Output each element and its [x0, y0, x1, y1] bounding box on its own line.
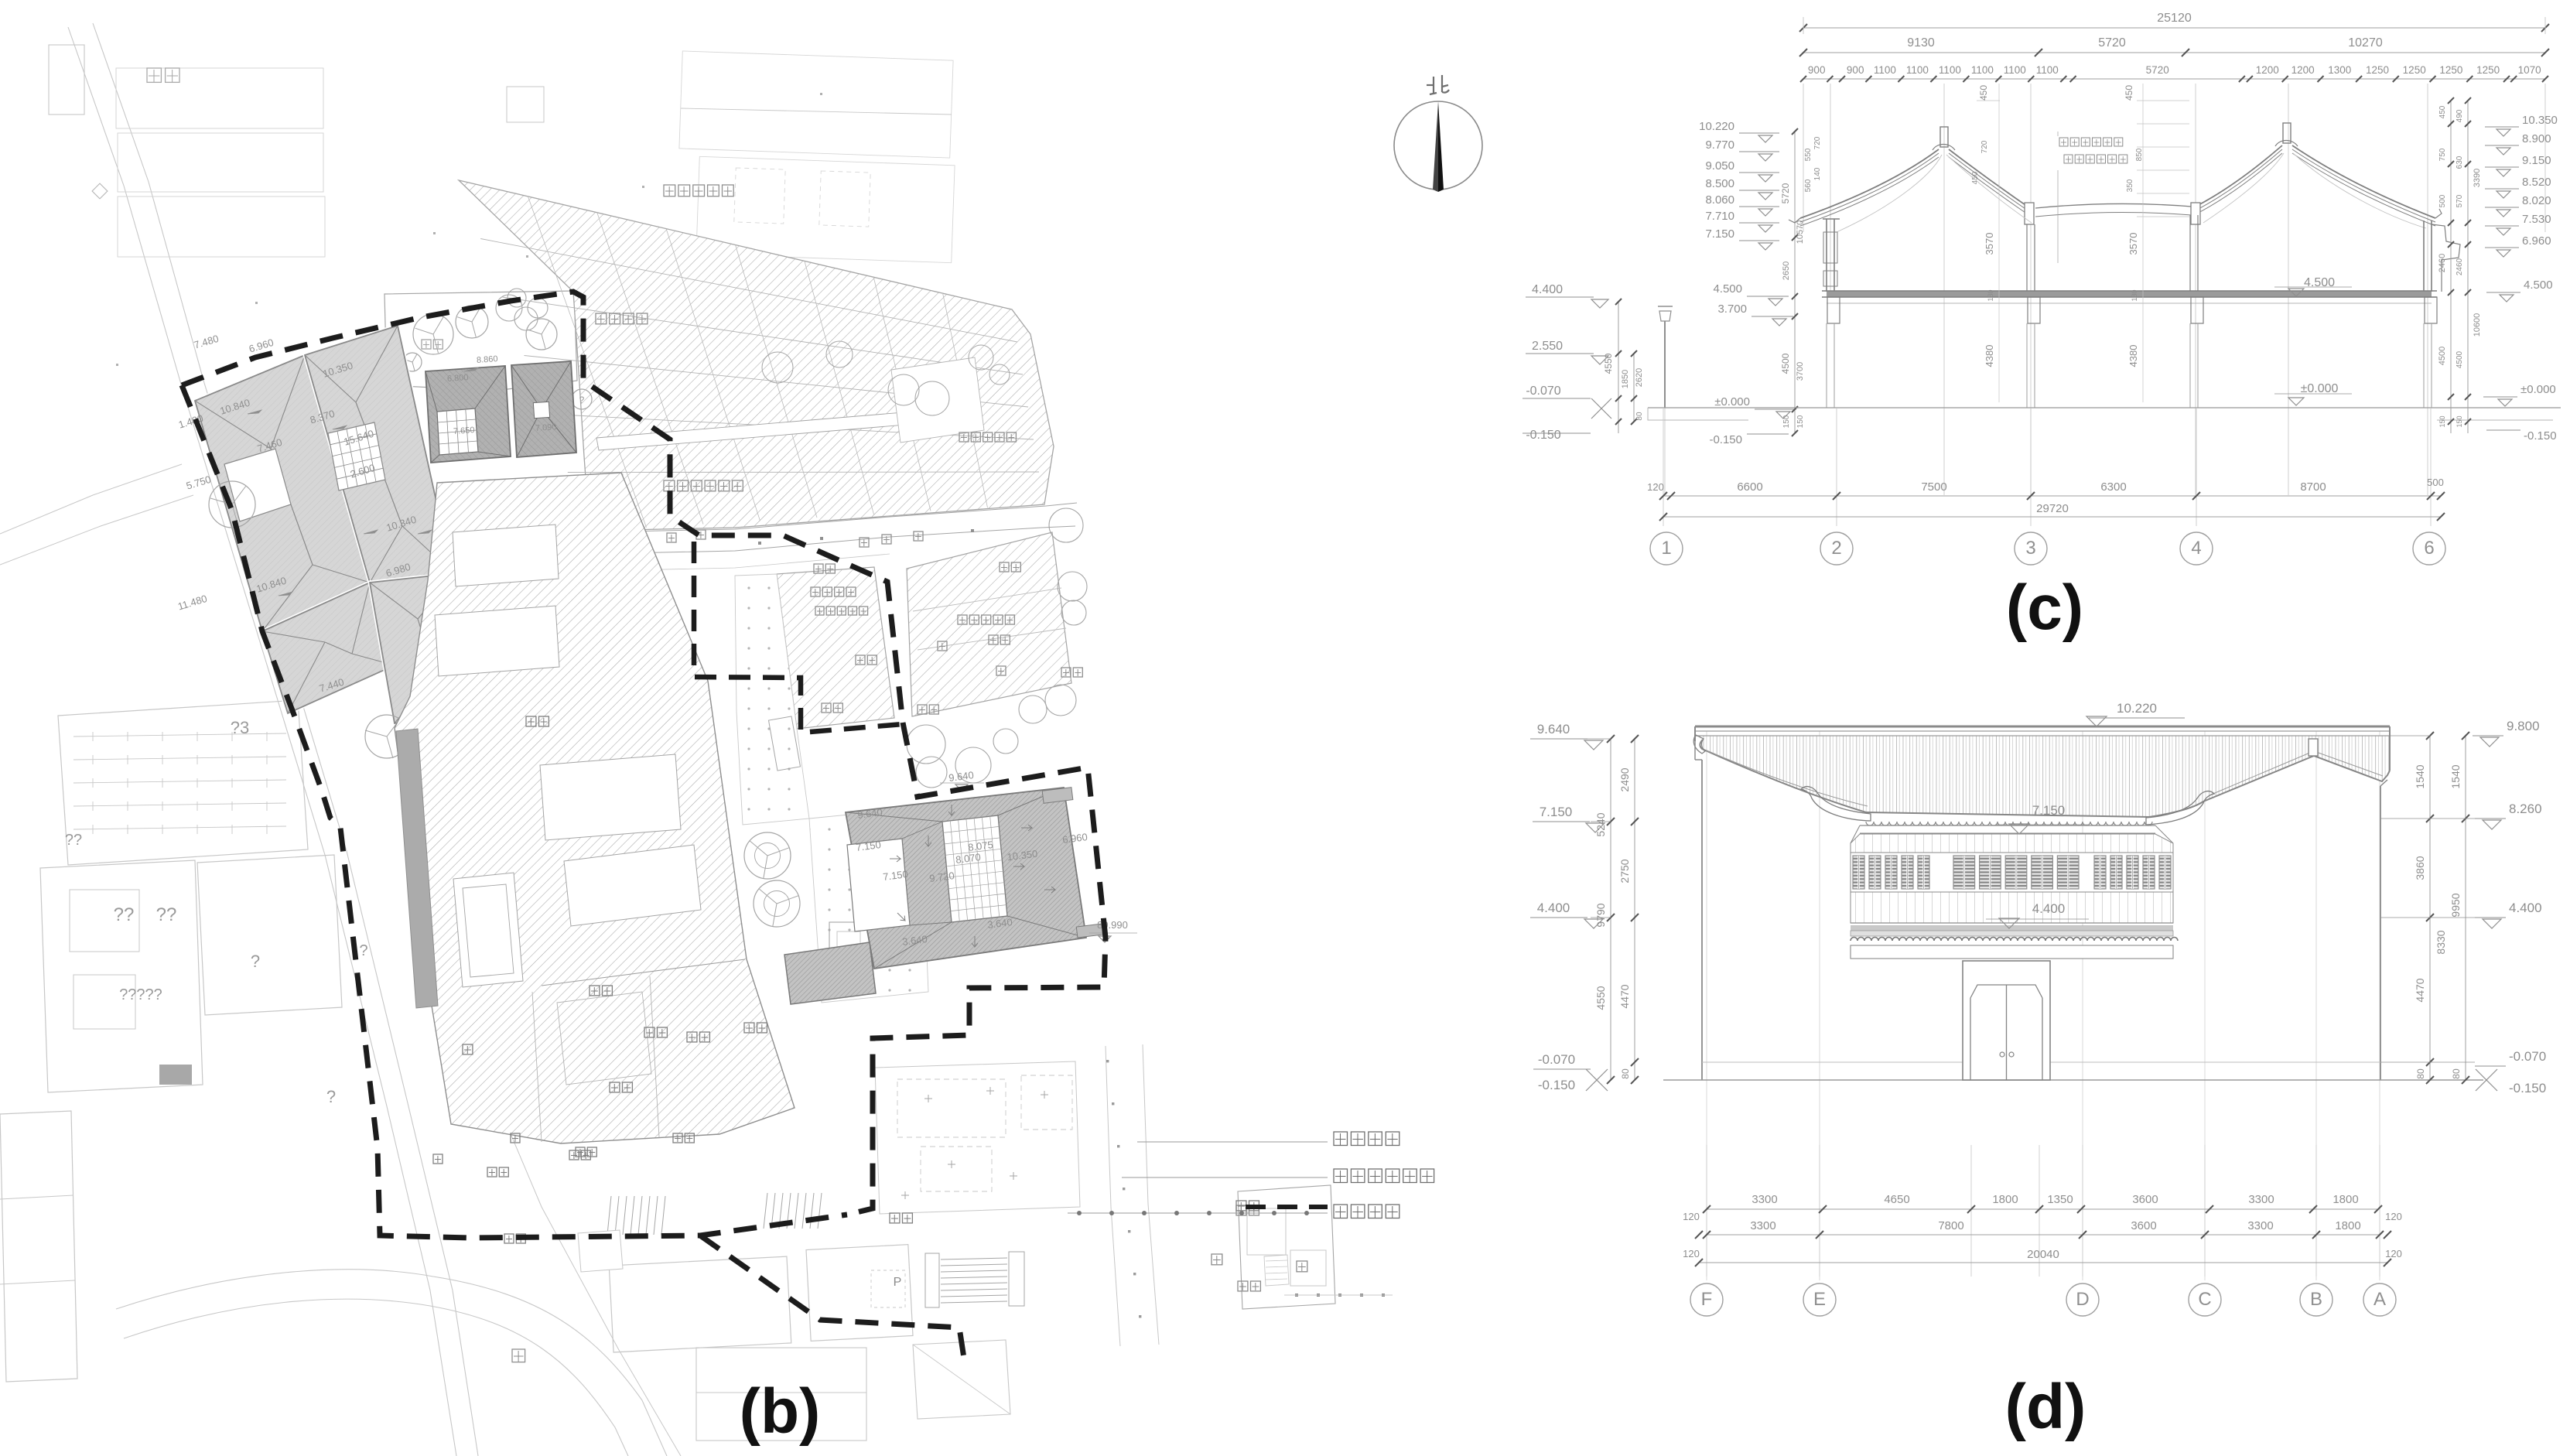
svg-text:2620: 2620: [1635, 368, 1644, 387]
svg-text:6.960: 6.960: [2522, 234, 2551, 248]
svg-text:1100: 1100: [2004, 64, 2026, 76]
svg-text:-0.150: -0.150: [2509, 1081, 2546, 1095]
svg-text:9.150: 9.150: [2522, 154, 2551, 167]
svg-text:1250: 1250: [2439, 64, 2462, 76]
svg-text:9.640: 9.640: [1537, 722, 1570, 737]
svg-text:3570: 3570: [1984, 233, 1995, 255]
svg-text:500: 500: [2427, 477, 2444, 488]
svg-text:±0.000: ±0.000: [1714, 395, 1750, 408]
svg-text:?????: ?????: [119, 986, 162, 1003]
svg-text:6300: 6300: [2100, 480, 2126, 494]
svg-text:3300: 3300: [1751, 1193, 1777, 1206]
svg-text:490: 490: [2456, 109, 2464, 122]
svg-text:10600: 10600: [2473, 313, 2482, 337]
svg-text:8.500: 8.500: [1705, 177, 1734, 190]
svg-text:1250: 1250: [2366, 64, 2389, 76]
svg-text:9790: 9790: [1594, 903, 1607, 927]
svg-text:4500: 4500: [2456, 350, 2464, 368]
svg-text:630: 630: [2456, 156, 2464, 169]
svg-text:4.400: 4.400: [1537, 901, 1570, 915]
svg-text:8700: 8700: [2300, 480, 2326, 494]
svg-text:8.020: 8.020: [2522, 194, 2551, 207]
svg-text:1540: 1540: [2449, 764, 2462, 788]
svg-text:1250: 1250: [2476, 64, 2500, 76]
svg-text:(d): (d): [2005, 1372, 2086, 1442]
svg-text:8330: 8330: [2435, 930, 2447, 954]
svg-text:6: 6: [2424, 538, 2434, 559]
svg-text:560: 560: [1804, 179, 1813, 192]
svg-text:3570: 3570: [2127, 233, 2139, 255]
svg-text:9130: 9130: [1907, 36, 1935, 50]
svg-text:120: 120: [1683, 1211, 1700, 1222]
svg-text:±0.000: ±0.000: [2520, 383, 2556, 396]
svg-text:1800: 1800: [2332, 1193, 2358, 1206]
svg-text:5720: 5720: [2098, 36, 2126, 50]
svg-text:2460: 2460: [2456, 258, 2464, 275]
svg-text:500: 500: [2438, 194, 2447, 207]
svg-text:1100: 1100: [2036, 64, 2059, 76]
svg-text:F: F: [1701, 1289, 1713, 1310]
svg-text:4.500: 4.500: [1713, 282, 1742, 296]
svg-text:120: 120: [1647, 481, 1664, 493]
svg-text:120: 120: [2385, 1211, 2402, 1222]
svg-text:7.650: 7.650: [453, 426, 475, 436]
svg-text:4.400: 4.400: [2509, 901, 2542, 915]
svg-text:720: 720: [1980, 140, 1989, 153]
svg-text:3300: 3300: [2248, 1193, 2274, 1206]
svg-text:2.550: 2.550: [1532, 340, 1563, 353]
svg-text:120: 120: [2385, 1248, 2402, 1259]
svg-text:7.090: 7.090: [535, 422, 557, 433]
svg-text:1350: 1350: [2047, 1193, 2073, 1206]
svg-text:?: ?: [579, 395, 585, 405]
svg-text:1070: 1070: [2518, 64, 2541, 76]
svg-text:-0.150: -0.150: [1538, 1078, 1575, 1092]
svg-text:4.400: 4.400: [1532, 283, 1563, 296]
svg-text:450: 450: [2124, 85, 2134, 101]
svg-text:??: ??: [114, 904, 135, 925]
svg-text:6.800: 6.800: [447, 373, 469, 384]
svg-text:1850: 1850: [1621, 370, 1630, 388]
svg-text:1200: 1200: [2291, 64, 2315, 76]
svg-text:150: 150: [1782, 415, 1791, 428]
svg-text:7800: 7800: [1938, 1219, 1963, 1232]
svg-text:7.150: 7.150: [2032, 803, 2066, 818]
svg-text:4650: 4650: [1884, 1193, 1909, 1206]
svg-text:5240: 5240: [1594, 812, 1607, 836]
svg-text:7500: 7500: [1921, 480, 1946, 494]
svg-text:??: ??: [156, 904, 177, 925]
svg-text:±0.000: ±0.000: [2301, 382, 2339, 395]
svg-text:570: 570: [2456, 194, 2464, 207]
svg-text:4: 4: [2191, 538, 2201, 559]
svg-text:900: 900: [1808, 64, 1826, 76]
svg-text:7.530: 7.530: [2522, 213, 2551, 226]
svg-text:4550: 4550: [1594, 986, 1607, 1010]
svg-text:2650: 2650: [1782, 261, 1791, 280]
svg-text:150: 150: [2438, 415, 2446, 427]
svg-text:1: 1: [1661, 538, 1671, 559]
svg-text:3700: 3700: [1796, 362, 1805, 381]
svg-text:9.050: 9.050: [1705, 159, 1734, 173]
svg-text:850: 850: [2135, 148, 2144, 161]
svg-text:1200: 1200: [2256, 64, 2279, 76]
svg-text:-0.070: -0.070: [2509, 1049, 2546, 1064]
svg-text:1800: 1800: [1992, 1193, 2018, 1206]
svg-text:80: 80: [1635, 412, 1644, 421]
svg-text:E: E: [1813, 1289, 1826, 1310]
svg-text:150: 150: [2456, 415, 2463, 427]
svg-text:8.260: 8.260: [2509, 801, 2542, 816]
svg-text:1800: 1800: [2335, 1219, 2360, 1232]
svg-text:10.220: 10.220: [1699, 120, 1734, 133]
svg-text:?: ?: [326, 1087, 336, 1106]
svg-text:4550: 4550: [1603, 353, 1614, 374]
svg-text:1250: 1250: [2403, 64, 2426, 76]
svg-text:-0.150: -0.150: [2524, 429, 2557, 443]
svg-text:20040: 20040: [2027, 1248, 2059, 1261]
svg-text:6600: 6600: [1737, 480, 1762, 494]
svg-text:2: 2: [1831, 538, 1841, 559]
svg-text:450: 450: [2438, 105, 2447, 118]
svg-text:(c): (c): [2006, 572, 2083, 643]
svg-text:P: P: [894, 1276, 902, 1289]
svg-text:1540: 1540: [2414, 764, 2426, 788]
svg-text:8.860: 8.860: [477, 354, 498, 365]
svg-text:1100: 1100: [1971, 64, 1994, 76]
svg-text:4380: 4380: [1984, 345, 1995, 367]
svg-text:10570: 10570: [1796, 220, 1805, 244]
svg-text:8.520: 8.520: [2522, 176, 2551, 189]
svg-text:3300: 3300: [2247, 1219, 2273, 1232]
svg-text:4500: 4500: [1780, 353, 1791, 374]
svg-text:3.700: 3.700: [1717, 302, 1747, 316]
svg-text:29720: 29720: [2036, 502, 2069, 515]
svg-text:-0.070: -0.070: [1538, 1052, 1575, 1067]
svg-text:150: 150: [1796, 415, 1805, 428]
svg-text:900: 900: [1847, 64, 1864, 76]
svg-text:?: ?: [251, 952, 260, 971]
svg-text:7.710: 7.710: [1705, 210, 1734, 223]
svg-text:2750: 2750: [1618, 859, 1631, 883]
svg-text:80: 80: [2451, 1068, 2462, 1079]
svg-text:?3: ?3: [231, 718, 249, 737]
svg-text:450: 450: [1978, 85, 1989, 101]
svg-text:3: 3: [2025, 538, 2035, 559]
svg-text:4470: 4470: [1618, 984, 1631, 1008]
svg-text:B: B: [2310, 1289, 2322, 1310]
svg-text:8.060: 8.060: [1705, 193, 1734, 207]
svg-text:3860: 3860: [2414, 856, 2426, 880]
svg-text:7.150: 7.150: [1705, 227, 1734, 241]
svg-text:C: C: [2198, 1289, 2211, 1310]
svg-text:?: ?: [359, 942, 367, 959]
svg-text:140: 140: [1813, 167, 1822, 180]
svg-text:25120: 25120: [2157, 12, 2192, 25]
svg-text:(b): (b): [740, 1376, 821, 1447]
svg-text:180: 180: [1987, 289, 1994, 301]
svg-text:720: 720: [1813, 136, 1822, 149]
svg-text:9.800: 9.800: [2507, 719, 2540, 733]
svg-text:4500: 4500: [2438, 347, 2447, 365]
svg-text:??: ??: [65, 832, 82, 849]
svg-text:3390: 3390: [2473, 169, 2482, 187]
svg-text:3300: 3300: [1750, 1219, 1775, 1232]
svg-text:1100: 1100: [1939, 64, 1961, 76]
svg-text:80: 80: [2415, 1068, 2426, 1079]
svg-text:-0.070: -0.070: [1526, 385, 1560, 398]
svg-text:80: 80: [1620, 1068, 1631, 1079]
svg-text:4470: 4470: [2414, 978, 2426, 1002]
svg-text:1100: 1100: [1874, 64, 1896, 76]
svg-text:2490: 2490: [1618, 767, 1631, 791]
svg-text:8.900: 8.900: [2522, 132, 2551, 145]
svg-text:4.500: 4.500: [2524, 279, 2553, 292]
svg-text:7.150: 7.150: [1540, 805, 1573, 819]
svg-text:10.220: 10.220: [2117, 701, 2157, 716]
svg-text:750: 750: [2438, 148, 2447, 161]
svg-text:2460: 2460: [2438, 254, 2447, 272]
svg-text:1300: 1300: [2328, 64, 2351, 76]
svg-text:120: 120: [1683, 1248, 1700, 1259]
svg-text:4.400: 4.400: [2032, 901, 2066, 916]
svg-text:D: D: [2076, 1289, 2089, 1310]
svg-text:9950: 9950: [2449, 893, 2462, 917]
svg-text:5720: 5720: [1780, 183, 1791, 203]
svg-text:350: 350: [2126, 179, 2134, 192]
svg-text:4380: 4380: [2127, 345, 2139, 367]
svg-text:4.500: 4.500: [2304, 276, 2335, 289]
svg-text:A: A: [2373, 1289, 2386, 1310]
svg-text:550: 550: [1804, 148, 1813, 161]
svg-text:5720: 5720: [2146, 64, 2169, 76]
svg-text:1100: 1100: [1906, 64, 1929, 76]
svg-text:10270: 10270: [2348, 36, 2383, 50]
svg-text:3600: 3600: [2132, 1193, 2158, 1206]
svg-text:9.770: 9.770: [1705, 138, 1734, 152]
svg-text:-0.150: -0.150: [1526, 429, 1560, 442]
svg-text:-0.150: -0.150: [1709, 433, 1742, 446]
svg-text:10.350: 10.350: [2522, 114, 2558, 127]
svg-text:180: 180: [2131, 289, 2138, 301]
svg-text:3600: 3600: [2131, 1219, 2156, 1232]
